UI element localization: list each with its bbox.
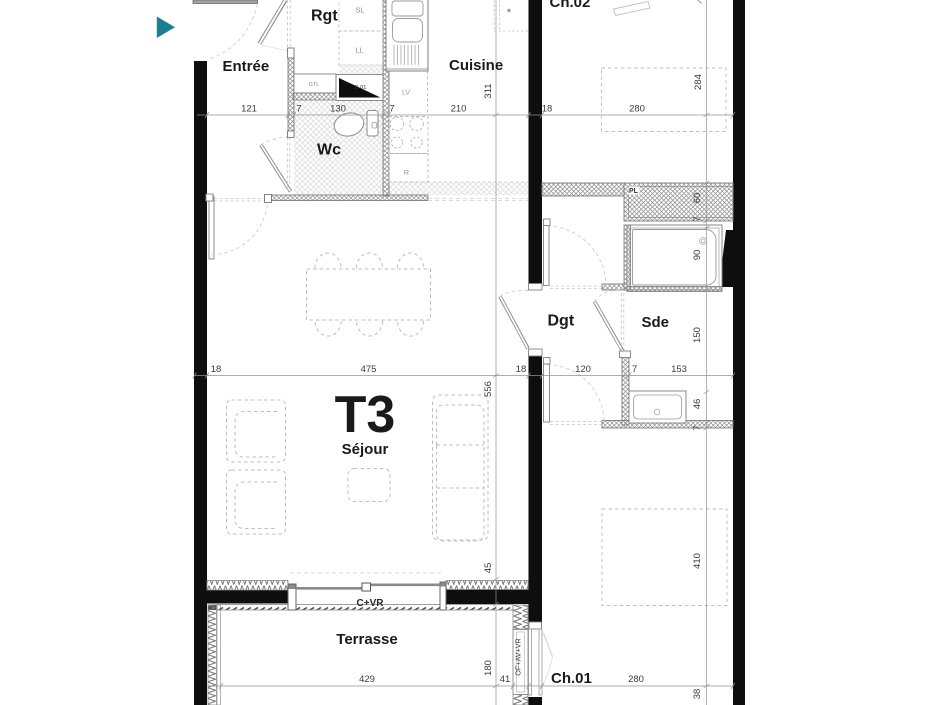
svg-text:153: 153 <box>671 364 687 375</box>
svg-text:475: 475 <box>361 364 377 375</box>
svg-text:R: R <box>404 168 410 177</box>
svg-text:7: 7 <box>632 364 637 375</box>
svg-text:7: 7 <box>692 216 703 221</box>
svg-text:Rgt: Rgt <box>311 8 338 25</box>
svg-text:Cuisine: Cuisine <box>449 57 503 74</box>
svg-text:429: 429 <box>359 674 375 685</box>
svg-text:556: 556 <box>483 381 494 397</box>
svg-text:180: 180 <box>483 660 494 676</box>
svg-text:C+VR: C+VR <box>357 598 385 609</box>
svg-text:B.01: B.01 <box>355 85 366 91</box>
svg-text:90: 90 <box>692 250 703 261</box>
svg-text:PL: PL <box>629 188 639 195</box>
svg-text:SL: SL <box>356 8 365 15</box>
svg-text:Séjour: Séjour <box>342 441 389 458</box>
svg-text:Sde: Sde <box>642 314 670 331</box>
svg-text:46: 46 <box>692 399 703 410</box>
svg-text:18: 18 <box>211 364 222 375</box>
svg-text:18: 18 <box>542 104 553 115</box>
svg-text:210: 210 <box>451 104 467 115</box>
svg-text:Ch.01: Ch.01 <box>551 670 592 687</box>
svg-text:LL: LL <box>356 48 364 55</box>
svg-text:410: 410 <box>692 553 703 569</box>
svg-text:Ch.02: Ch.02 <box>550 0 591 11</box>
svg-text:OF+AV+VR: OF+AV+VR <box>514 638 523 675</box>
svg-text:Wc: Wc <box>317 142 341 159</box>
svg-text:Dgt: Dgt <box>548 313 575 330</box>
svg-text:7: 7 <box>692 425 703 430</box>
svg-text:Terrasse: Terrasse <box>336 631 397 648</box>
svg-text:GTL: GTL <box>309 82 320 88</box>
svg-text:45: 45 <box>483 563 494 574</box>
svg-text:311: 311 <box>483 83 494 98</box>
svg-text:60: 60 <box>692 193 703 204</box>
svg-text:Entrée: Entrée <box>223 58 270 75</box>
svg-text:LV: LV <box>402 90 410 97</box>
svg-text:280: 280 <box>628 674 644 685</box>
svg-text:130: 130 <box>330 104 346 115</box>
svg-text:18: 18 <box>516 364 527 375</box>
svg-text:150: 150 <box>692 327 703 343</box>
svg-text:7: 7 <box>296 104 301 115</box>
svg-text:7: 7 <box>389 104 394 115</box>
svg-text:121: 121 <box>241 104 257 115</box>
svg-text:41: 41 <box>500 674 511 685</box>
svg-text:T3: T3 <box>335 386 396 444</box>
svg-text:280: 280 <box>629 104 645 115</box>
svg-text:38: 38 <box>692 689 703 700</box>
svg-text:284: 284 <box>693 74 704 90</box>
svg-text:120: 120 <box>575 364 591 375</box>
